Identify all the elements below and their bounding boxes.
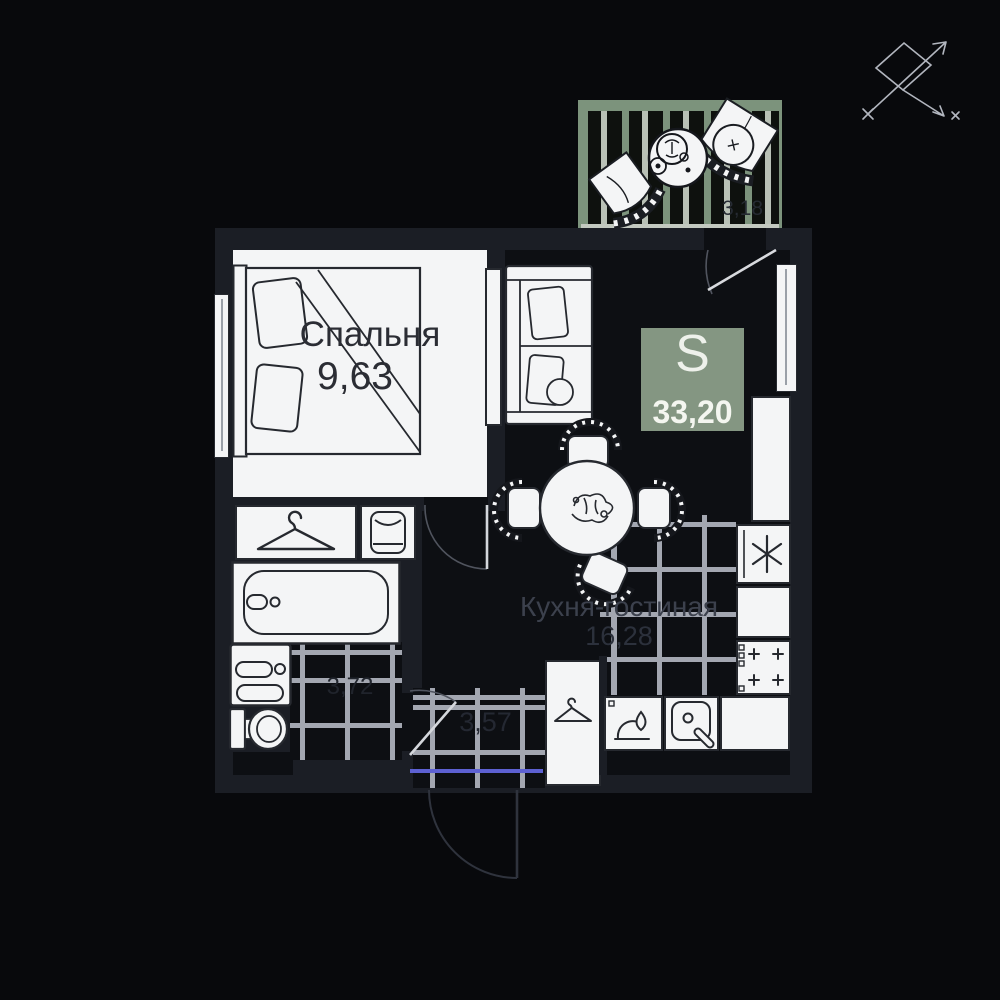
bedroom-area: 9,63 (250, 356, 460, 399)
kitchen-living-label: Кухня-гостиная (503, 592, 735, 623)
badge-label: S (675, 328, 710, 380)
sofa (504, 264, 596, 428)
compass-icon (856, 22, 964, 124)
washbasin (229, 643, 292, 707)
flame-icon (604, 696, 663, 751)
hanger-icon (551, 698, 595, 724)
balcony-door (700, 244, 782, 306)
bathroom-area: 3,72 (300, 674, 400, 700)
bedroom-window (214, 294, 229, 458)
balcony-area: 3,18 (722, 197, 763, 220)
balcony-table (649, 129, 707, 187)
dining-chair (494, 482, 540, 538)
total-area-badge: S 33,20 (641, 328, 744, 431)
hanger-icon (250, 512, 342, 554)
shirt-icon (360, 505, 416, 560)
dining-chair (638, 482, 682, 538)
sink-icon (664, 696, 719, 751)
dining-set (496, 424, 682, 594)
hallway-area: 3,57 (428, 708, 543, 738)
toilet (228, 702, 290, 756)
bedroom-door (420, 499, 496, 577)
counter-cell (736, 586, 791, 638)
bedroom-label: Спальня (250, 316, 490, 355)
entrance-door (420, 784, 528, 886)
bathtub (231, 561, 401, 645)
badge-area: 33,20 (652, 394, 732, 431)
kitchen-tall-cabinet (751, 396, 791, 522)
kitchen-living-area: 16,28 (503, 622, 735, 652)
asterisk-icon (736, 524, 791, 584)
entrance-threshold-line (410, 769, 543, 773)
burners-plus-icon (736, 640, 791, 695)
kitchen-lower-floor (604, 750, 790, 775)
counter-end-cell (720, 696, 790, 751)
floor-plan: 3,18 (0, 0, 1000, 1000)
bathroom-tiles (290, 642, 402, 760)
balcony: 3,18 (578, 100, 782, 232)
